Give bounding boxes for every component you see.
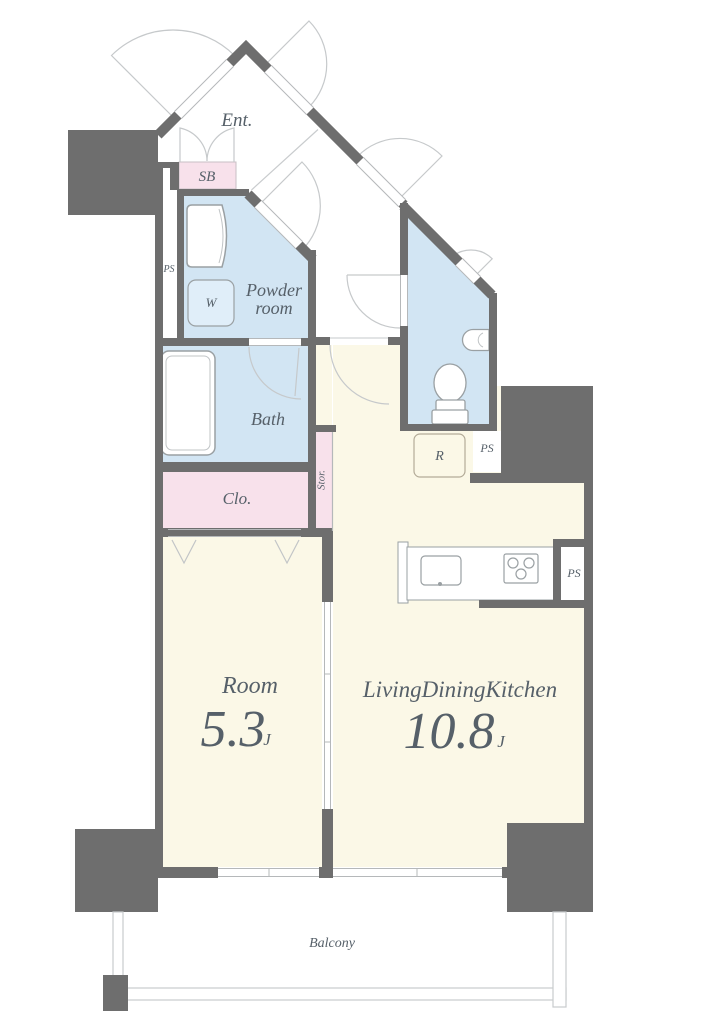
svg-text:PS: PS <box>566 566 580 580</box>
svg-text:R: R <box>434 449 444 464</box>
svg-text:W: W <box>206 295 218 310</box>
svg-text:Clo.: Clo. <box>223 489 252 508</box>
svg-text:LivingDiningKitchen: LivingDiningKitchen <box>362 677 557 702</box>
svg-text:PS: PS <box>162 264 174 275</box>
svg-text:Balcony: Balcony <box>309 936 356 951</box>
svg-text:5.3: 5.3 <box>201 701 266 758</box>
svg-text:Powder: Powder <box>245 280 303 300</box>
svg-text:Stor.: Stor. <box>316 470 328 490</box>
svg-text:Bath: Bath <box>251 409 285 429</box>
svg-text:room: room <box>255 298 292 318</box>
svg-text:SB: SB <box>199 169 216 185</box>
svg-text:Ent.: Ent. <box>220 110 252 131</box>
svg-text:PS: PS <box>479 441 493 455</box>
svg-text:Room: Room <box>221 673 278 699</box>
svg-text:10.8: 10.8 <box>404 703 495 760</box>
